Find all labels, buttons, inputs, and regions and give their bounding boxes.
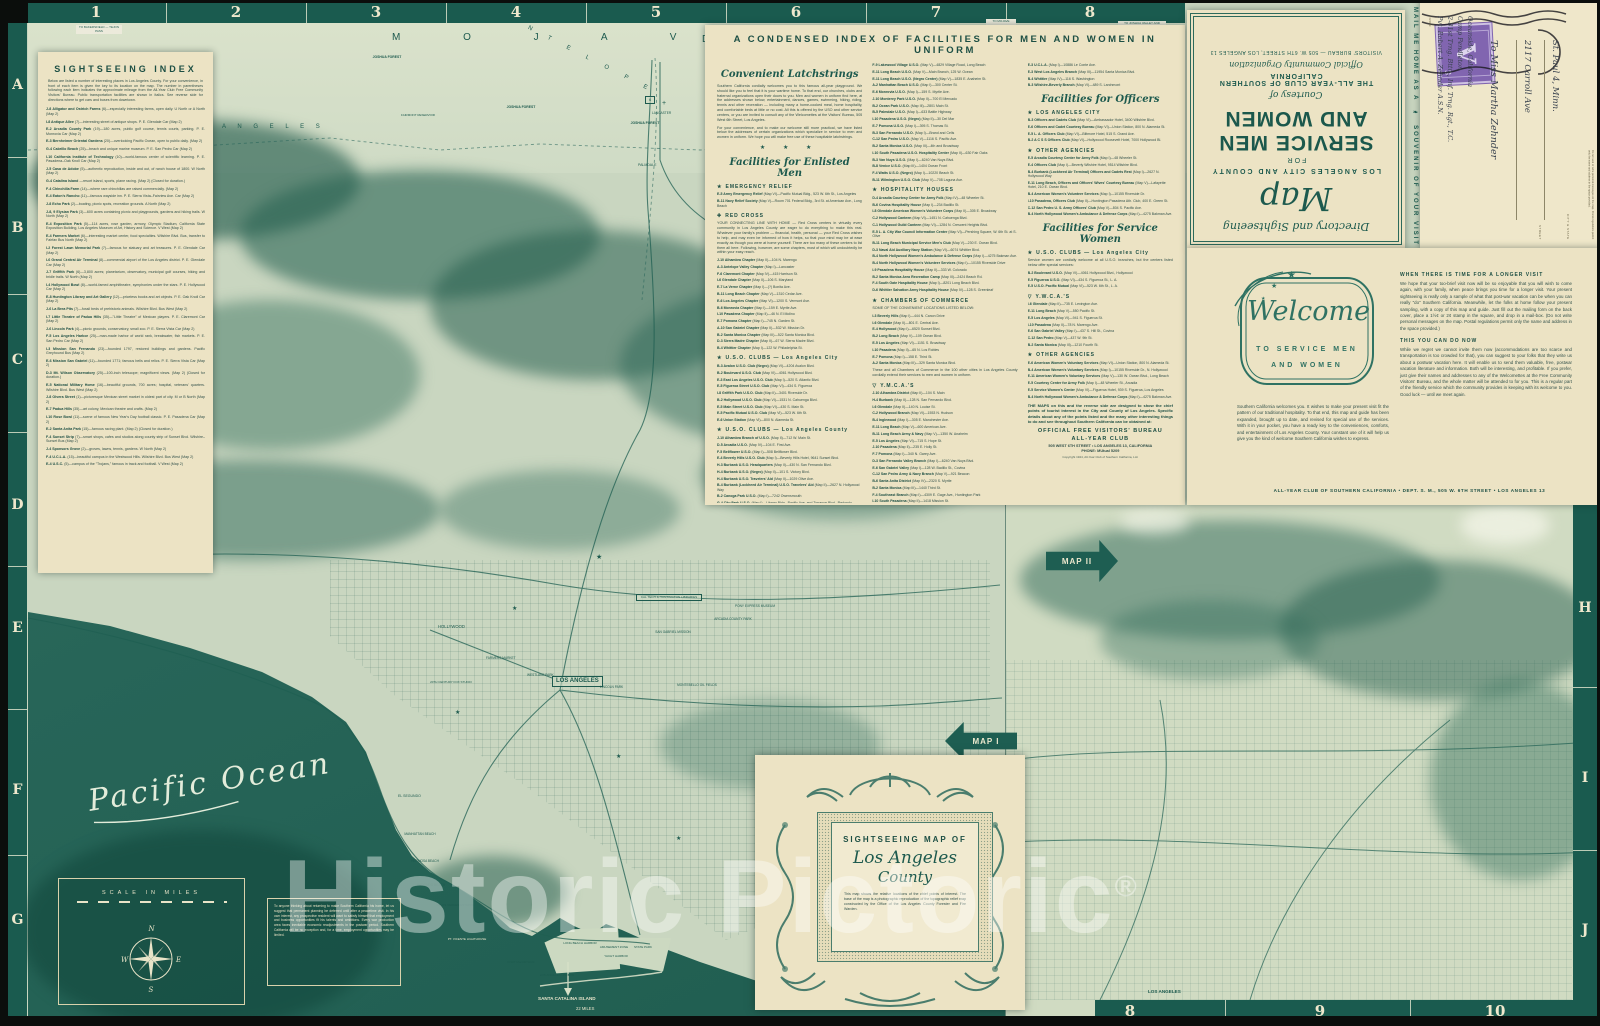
index-entry: F-4 Southeast Branch (Map I)—4309 E. Gag…: [872, 493, 1017, 497]
index-entry: E-11 American Women's Voluntary Services…: [1028, 374, 1173, 378]
map-label: LINCOLN PARK: [600, 686, 623, 690]
map-label: HERMOSA BEACH: [406, 860, 444, 864]
map-label: +: [662, 100, 666, 108]
map-label: AMUSEMENT ZONE: [596, 946, 632, 949]
index-entry: I-6 Glendale (Map II)—735 E. Lexington A…: [1028, 302, 1173, 306]
index-entry: B-4 Inglewood (Map I)—305 E. Manchester …: [872, 418, 1017, 422]
index-entry: G-4 City Park U.S.O. (Map I)—Library Bld…: [717, 501, 862, 503]
index-entry: B-2 Boulevard U.S.O. (Map VI)—4061 Holly…: [1028, 271, 1173, 275]
index-entry: E-11 Long Beach, Officers and Officers' …: [1028, 181, 1173, 190]
mountain-shading: [440, 470, 680, 550]
index-entry: B-2 Santa Monica (Map III)—1210 Fourth S…: [1028, 343, 1173, 347]
index-entry: D-6 Whittier Salvation Army Hospitality …: [872, 288, 1017, 292]
grid-number: 5: [651, 3, 661, 21]
map-label: SAN GABRIEL MISSION: [652, 631, 694, 635]
index-entry: E-5 Los Angeles (Map VI)—941 S. Figueroa…: [1028, 316, 1173, 320]
welcome-paragraph: Southern California welcomes you. It wis…: [1237, 404, 1389, 442]
index-entry: E-2 Santa Anita Park (15)—famous racing …: [46, 427, 205, 431]
index-entry: B-2 Santa Monica Area Recreation Camp (M…: [872, 275, 1017, 279]
welcome-panel: ★ ★ ★ Welcome TO SERVICE MEN AND WOMEN S…: [1187, 248, 1600, 505]
map-label: EL SEGUNDO: [398, 795, 421, 799]
street-label: STREET: [1538, 225, 1542, 240]
index-entry: B-4 North Hollywood Women's Ambulance & …: [1028, 212, 1173, 216]
index-entry: C-12 San Pedro U.S.O. (Map V)—1116 S. Pa…: [872, 137, 1017, 141]
map-label: YACHT HARBOR: [600, 955, 632, 958]
index-entry: B-4 North Hollywood Women's Ambulance & …: [872, 254, 1017, 258]
index-entry: I-10 South Pasadena (Map II)—1418 Missio…: [872, 499, 1017, 503]
index-entry: F-5 Los Angeles Harbor (25)—man-made har…: [46, 334, 205, 343]
cover-panel-text: Directory and SightseeingMapLOS ANGELES …: [1193, 16, 1399, 242]
index-entry: E-5 Figueroa U.S.O. (Map VI)—434 S. Figu…: [1028, 278, 1173, 282]
grid-letter: H: [1578, 600, 1591, 616]
condensed-index-column: E-3 U.C.L.A. (Map I)—10886 Le Conte Ave.…: [1028, 63, 1173, 503]
grid-letter: D: [11, 497, 23, 513]
do-now-heading: THIS YOU CAN DO NOW: [1400, 338, 1572, 344]
index-entry: J-4 Sponsors Grove (2)—groves, lawns, te…: [46, 447, 205, 451]
index-entry: E-4 U.S.C. (5)—campus of the "Trojans," …: [46, 462, 205, 466]
index-entry: B-11 Navy Relief Society (Map V)—Room 70…: [717, 199, 862, 208]
longer-visit-heading: WHEN THERE IS TIME FOR A LONGER VISIT: [1400, 272, 1572, 278]
svg-text:S: S: [149, 986, 154, 994]
index-entry: E-11 Long Beach (Map V)—600 American Ave…: [872, 425, 1017, 429]
stars-divider-icon: ★ ★ ★: [717, 144, 862, 151]
index-entry: B-2 Santa Monica U.S.O. (Map III)—4th an…: [872, 144, 1017, 148]
cover-panel: Directory and SightseeingMapLOS ANGELES …: [1187, 10, 1405, 248]
index-entry: E-4 Beverly Hills U.S.O. Club (Map I)—Be…: [717, 456, 862, 460]
do-now-paragraph: While we regret we cannot invite them no…: [1400, 347, 1572, 398]
index-entry: E-5 Arcadia Courtesy Center for Army Fol…: [1028, 156, 1173, 160]
index-entry: I-9 Pasadena Hospitality House (Map II)—…: [872, 268, 1017, 272]
index-entry: B-8 Venice U.S.O. (Map III)—1404 Ocean F…: [872, 164, 1017, 168]
welcome-sub1: TO SERVICE MEN: [1247, 346, 1367, 353]
city-state-line: St. Paul 4, Minn.: [1550, 40, 1560, 210]
section-heading: ★HOSPITALITY HOUSES: [872, 187, 1017, 193]
index-entry: E-7 Pomona U.S.O. (Map I)—395 S. Thomas …: [872, 124, 1017, 128]
mailer-fine-print: Do not seal or write personal messages o…: [1578, 150, 1594, 242]
section-heading: ★OTHER AGENCIES: [1028, 148, 1173, 154]
index-entry: A-2 Manhattan Beach U.S.O. (Map I)—300 C…: [872, 83, 1017, 87]
index-entry: B-3 San Fernando U.S.O. (Map I)—Brand an…: [872, 131, 1017, 135]
star-icon: ★: [1028, 148, 1033, 154]
index-entry: I-10 Pasadena (Map II)—78 N. Marengo Ave…: [1028, 323, 1173, 327]
index-entry: I-10 Pasadena Chapter (Map II)—46 N. El …: [717, 312, 862, 316]
map-label: 20TH CENTURY FOX STUDIO: [428, 681, 474, 684]
cartouche-note: This map shows the relative locations of…: [844, 892, 966, 912]
index-entry: H-4 Burbank U.S.O. Travelers' Aid (Map I…: [717, 477, 862, 481]
address-block: To Miss Martha Zehnder STREET 2117 Carro…: [1488, 40, 1572, 240]
index-entry: B-4 North Hollywood Women's Ambulance & …: [1028, 395, 1173, 399]
map-label: LANCASTER: [652, 112, 671, 116]
index-entry: I-3 Beverly Hills (Map I)—444 N. Canon D…: [872, 314, 1017, 318]
grid-letter: C: [12, 352, 23, 368]
grid-number: 3: [371, 3, 381, 21]
map-label: LOS ANGELES: [552, 676, 603, 687]
index-entry: C-2 Hollywood Branch (Map VI)—1553 N. Hu…: [872, 411, 1017, 415]
grid-letter: I: [1582, 770, 1589, 786]
bureau-address-line: 505 WEST 6TH STREET • LOS ANGELES 13, CA…: [1028, 444, 1173, 448]
index-entry: J-8 Olvera Street (1)—picturesque Mexica…: [46, 395, 205, 404]
longer-visit-paragraph: We hope that your too-brief visit now wi…: [1400, 281, 1572, 332]
from-label: FROM: [1428, 16, 1432, 241]
condensed-index-columns: Convenient LatchstringsSouthern Californ…: [705, 63, 1185, 503]
map-label: LOS ANGELES: [1148, 989, 1181, 994]
index-entry: F-6 Claremont Chapter (Map IV)—415 Harri…: [717, 272, 862, 276]
cover-line: VISITORS' BUREAU — 505 W. 6TH STREET, LO…: [1200, 49, 1392, 55]
cartouche-kicker: SIGHTSEEING MAP OF: [832, 835, 978, 844]
index-entry: I-10 Pasadena (Map II)—65 N. Los Robles: [872, 348, 1017, 352]
grid-letter: G: [12, 912, 24, 928]
index-entry: D-3 Naval Aid Auxiliary Navy Station (Ma…: [872, 248, 1017, 252]
cover-line: LOS ANGELES CITY AND COUNTY: [1200, 167, 1392, 174]
map-label: ★: [455, 710, 460, 717]
sender-line: Camp Pendleton: [1456, 16, 1464, 236]
index-entry: I-10 Pasadena, Officers Club (Map II)—Hu…: [1028, 199, 1173, 203]
sender-line: Oceanside, California: [1466, 16, 1474, 236]
svg-text:★: ★: [1271, 282, 1277, 290]
map-label: 6: [645, 96, 655, 104]
section-heading: ★U.S.O. CLUBS — Los Angeles City: [717, 355, 862, 361]
index-entry: I-10 Pasadena U.S.O. (Negro) (Map II)—30…: [872, 117, 1017, 121]
mail-home-strip: MAIL ME HOME AS A ❧ SOUVENIR OF YOUR VIS…: [1403, 4, 1419, 250]
index-entry: E-5 U.S.O. Pacific Mutual (Map VI)—523 W…: [1028, 284, 1173, 288]
grid-band-right: HIJ: [1573, 505, 1597, 1016]
index-entry: E-6 San Gabriel Valley (Map I)—437 S. Hi…: [1028, 329, 1173, 333]
index-entry: C-1 Hollywood Guild Canteen (Map VI)—128…: [872, 223, 1017, 227]
index-entry: C-12 San Pedro (Map V)—437 W. 9th St.: [1028, 336, 1173, 340]
index-entry: B-2 Canoga Park U.S.O. (Map I)—7242 Owen…: [717, 494, 862, 498]
index-entry: J-6 Lincoln Park (4)—picnic grounds, con…: [46, 327, 205, 331]
index-entry: D-3 Sierra Madre Chapter (Map II)—67 W. …: [717, 339, 862, 343]
welcome-title: Welcome: [1247, 296, 1367, 327]
index-entry: E-5 Pacific Mutual U.S.O. Club (Map VI)—…: [717, 411, 862, 415]
index-entry: B-2 A C S S Officers Club (Map VI)—Holly…: [1028, 138, 1173, 142]
map-label: PT. VICENTE LIGHTHOUSE: [444, 938, 490, 941]
section-heading: ▽Y.W.C.A.'S: [1028, 294, 1173, 300]
map-label: JOSHUA FOREST: [630, 122, 660, 126]
employment-notice: To anyone thinking about returning to ma…: [267, 898, 401, 986]
index-entry: I-10 California Institute of Technology …: [46, 155, 205, 164]
scale-box: SCALE IN MILES N: [58, 878, 245, 1005]
index-entry: E-5 National Military Home (16)—beautifu…: [46, 383, 205, 392]
sightseeing-index-title: SIGHTSEEING INDEX: [42, 64, 209, 74]
sightseeing-index-panel: SIGHTSEEING INDEX Below are listed a num…: [38, 52, 213, 573]
index-entry: B-2 Santa Monica (Map III)—1440 Third St…: [872, 486, 1017, 490]
index-entry: B-11 Long Beach Army & Navy (Map V)—1350…: [872, 432, 1017, 436]
index-entry: B-6 Santa Anita District (Map IV)—2320 S…: [872, 479, 1017, 483]
section-paragraph: Service women are cordially welcome at a…: [1028, 258, 1173, 268]
index-entry: B-6 Covina Hospitality House (Map I)—234…: [872, 203, 1017, 207]
index-entry: B-4 North Hollywood Women's Volunteer Se…: [872, 261, 1017, 265]
index-entry: F-4 Sunset Strip (7)—smart shops, cafes …: [46, 435, 205, 444]
triangle-icon: ▽: [1028, 294, 1033, 300]
map-label: FAIRMONT RESERVOIR: [400, 114, 436, 117]
map-label: PALOS VERDES ESTATES: [434, 904, 476, 907]
index-entry: E-3 East Los Angeles U.S.O. Club (Map I)…: [717, 378, 862, 382]
index-entry: B-2 Hollywood U.S.O. Club (Map VI)—1531 …: [717, 398, 862, 402]
welcome-frame: ★ ★ ★: [1231, 266, 1383, 396]
sightseeing-index-entries: J-8 Alligator and Ostrich Farms (6)—espe…: [38, 107, 213, 467]
map-label: CAL TECH & HUNTINGTON LIBRARIES: [636, 594, 702, 601]
map-label: WESTLAKE PARK: [527, 674, 554, 678]
section-paragraph: SOME OF THE CONVENIENT LOCATIONS LISTED …: [872, 306, 1017, 311]
index-entry: C-2 Hollywood Canteen (Map VI)—1451 N. C…: [872, 216, 1017, 220]
index-entry: E-7 Padua Hills (35)—art colony, Mexican…: [46, 407, 205, 411]
grid-number: 6: [791, 3, 801, 21]
index-entry: B-3 Wilshire-Beverly Branch (Map VI)—489…: [1028, 83, 1173, 87]
index-entry: D-5 Arcadia U.S.O. (Map IV)—104 E. First…: [717, 443, 862, 447]
grid-number: 2: [231, 3, 241, 21]
section-heading: ★LOS ANGELES CITY: [1028, 110, 1173, 116]
index-entry: F-5 Bellflower U.S.O. (Map I)—508 Bellfl…: [717, 450, 862, 454]
grid-letter: F: [13, 782, 23, 798]
index-entry: B-5 Palmdale U.S.O. (Map I)—633 Battle H…: [872, 110, 1017, 114]
map-label: ★: [676, 836, 681, 843]
index-entry: J-10 Pasadena (Map II)—235 E. Holly St.: [872, 445, 1017, 449]
welcome-sub2: AND WOMEN: [1247, 362, 1367, 369]
inset-cloud: [1460, 505, 1550, 545]
bureau-address-line: PHONE: MUtual 5209: [1028, 449, 1173, 453]
star-icon: ★: [1028, 250, 1033, 256]
star-icon: ★: [1028, 352, 1033, 358]
index-entry: B-4 Whittier (Map IV)—116 S. Washington: [1028, 77, 1173, 81]
index-entry: E-4 Officers Club (Map I)—Beverly Wilshi…: [1028, 163, 1173, 167]
grid-number: 8: [1085, 3, 1095, 21]
map-label: REDONDO BEACH: [412, 884, 450, 888]
section-heading: ★U.S.O. CLUBS — Los Angeles City: [1028, 250, 1173, 256]
index-entry: E-8 Huntington Library and Art Gallery (…: [46, 295, 205, 304]
map-route-chip: TO BAKERSFIELD — TEJON PASS: [76, 25, 122, 34]
section-script-heading: Convenient Latchstrings: [717, 69, 862, 80]
section-heading: ★CHAMBERS OF COMMERCE: [872, 298, 1017, 304]
cover-line: Map: [1200, 180, 1392, 218]
scan-edge-bottom: [0, 1016, 1600, 1026]
index-entry: B-3 Van Nuys U.S.O. (Map I)—6240 Van Nuy…: [872, 158, 1017, 162]
compass-n: N: [148, 925, 156, 933]
cartouche-text-panel: SIGHTSEEING MAP OF Los Angeles County Th…: [831, 822, 979, 952]
cover-line: SERVICE MEN: [1200, 130, 1392, 154]
cover-line: Official Community Organization: [1200, 60, 1392, 69]
index-entry: I-10 South Pasadena U.S.O. Hospitality C…: [872, 151, 1017, 155]
section-paragraph: YOUR CONNECTING LINE WITH HOME — Red Cro…: [717, 221, 862, 255]
map-label: 22 MILES: [576, 1007, 594, 1012]
grid-band-left: ABCDEFG: [8, 23, 27, 1016]
star-icon: ★: [872, 298, 877, 304]
condensed-index-panel: A CONDENSED INDEX OF FACILITIES FOR MEN …: [705, 25, 1185, 505]
scanned-map-sheet: 12345678 ABCDEFG HIJ 8910 M O J A V EDA …: [0, 0, 1600, 1026]
triangle-icon: ▽: [872, 383, 877, 389]
section-paragraph: These and all Chambers of Commerce in th…: [872, 368, 1017, 378]
star-icon: ★: [717, 427, 722, 433]
cartouche-title-1: Los Angeles: [832, 848, 978, 868]
section-script-heading: Facilities for Officers: [1028, 94, 1173, 105]
grid-number: 7: [931, 3, 941, 21]
index-entry: E-6 Mission San Gabriel (11)—founded 177…: [46, 359, 205, 368]
sender-line: 2-81st Trng. Bttn., Inf. Trng. Rgt., T.C…: [1446, 16, 1454, 236]
index-entry: E-2 Arcadia County Park (19)—180 acres, …: [46, 127, 205, 136]
index-entry: H-4 Burbank (Map II)—128 N. San Fernando…: [872, 398, 1017, 402]
map-label: JOSHUA FOREST: [372, 56, 402, 60]
cover-line: Courtesy of: [1200, 89, 1392, 99]
map-label: ★: [512, 606, 517, 613]
map-label: ★: [596, 554, 602, 562]
index-entry: F-7 Pomona (Map I)—340 N. Garey Ave.: [872, 452, 1017, 456]
map-label: LOS ANGELES HARBOR: [536, 974, 578, 977]
star-ornament-icon: ★: [1287, 270, 1296, 281]
section-script-heading: Facilities for Service Women: [1028, 223, 1173, 245]
condensed-index-column: Convenient LatchstringsSouthern Californ…: [717, 63, 862, 503]
index-entry: D-3 San Fernando Valley Branch (Map I)—6…: [872, 459, 1017, 463]
scan-edge-left: [0, 0, 8, 1026]
index-entry: B-3 Officers and Cadets Club (Map VI)—Am…: [1028, 118, 1173, 122]
index-entry: A-2 Santa Monica (Map III)—329 Santa Mon…: [872, 361, 1017, 365]
index-entry: B-2 Santa Monica Chapter (Map III)—522 S…: [717, 333, 862, 337]
index-entry: E-7 La Verne Chapter (Map I)—(?) Bonita …: [717, 285, 862, 289]
index-entry: I-6 Glendale Chapter (Map II)—106 S. Mar…: [717, 278, 862, 282]
section-script-heading: Facilities for Enlisted Men: [717, 157, 862, 179]
cover-line: Directory and Sightseeing: [1200, 220, 1392, 233]
cross-icon: ✚: [717, 213, 722, 219]
index-entry: D-4 Arcadia Courtesy Center for Army Fol…: [872, 196, 1017, 200]
condensed-index-column: F-9 Lakewood Village U.S.O. (Map V)—4829…: [872, 63, 1017, 503]
to-line: To Miss Martha Zehnder: [1488, 40, 1499, 235]
index-entry: I-3 Mission San Fernando (23)—founded 17…: [46, 347, 205, 356]
scan-edge-top: [0, 0, 1600, 3]
cartouche-title-2: County: [832, 868, 978, 886]
index-entry: E-6 Union Station (Map VI)—800 N. Alamed…: [717, 418, 862, 422]
section-heading: ✚RED CROSS: [717, 213, 862, 219]
index-entry: B-11 Long Beach Chapter (Map V)—1310 Ced…: [717, 292, 862, 296]
sender-block: FROM Pvt. Robert A. Zehnder A.S.N.2-81st…: [1428, 16, 1484, 241]
map-label: ★: [616, 754, 621, 761]
section-heading: ▽Y.M.C.A.'S: [872, 383, 1017, 389]
cover-line: FOR: [1200, 156, 1392, 163]
grid-letter: B: [12, 220, 24, 236]
index-entry: E-5 Army Emergency Relief (Map VI)—Pacif…: [717, 192, 862, 196]
index-entry: F-9 Lakewood Village U.S.O. (Map V)—4829…: [872, 63, 1017, 67]
index-entry: B-2 Ocean Park U.S.O. (Map III)—2801 Mai…: [872, 104, 1017, 108]
index-entry: I-2 Forest Lawn Memorial Park (7)—famous…: [46, 246, 205, 255]
map-label: JOSHUA FOREST: [506, 106, 536, 110]
index-entry: E-6 American Women's Voluntary Services …: [1028, 361, 1173, 365]
index-entry: B-4 American Women's Voluntary Services …: [1028, 368, 1173, 372]
index-entry: F-4 Chinchilla Farm (14)—where rare chin…: [46, 187, 205, 191]
section-heading: ★OTHER AGENCIES: [1028, 352, 1173, 358]
index-entry: E-5 Los Angeles (Map VI)—715 S. Hope St.: [872, 439, 1017, 443]
index-entry: E-6 Monrovia U.S.O. (Map I)—159 S. Myrtl…: [872, 90, 1017, 94]
index-entry: E-6 Los Angeles Chapter (Map VI)—1200 S.…: [717, 299, 862, 303]
grid-letter: E: [12, 620, 23, 636]
section-heading: ★EMERGENCY RELIEF: [717, 184, 862, 190]
index-entry: I-8 Griffith Park U.S.O. Club (Map II)—3…: [717, 391, 862, 395]
index-entry: J-10 Monterey Park U.S.O. (Map II)—700 E…: [872, 97, 1017, 101]
index-entry: E-11 Long Beach (Map V)—550 Pacific St.: [1028, 309, 1173, 313]
section-paragraph: For your convenience, and to make our we…: [717, 126, 862, 140]
section-paragraph-bold: THE MAPS on this and the reverse side ar…: [1028, 403, 1173, 425]
map-label: PALMDALE: [638, 164, 656, 168]
index-entry: I-6 Glendale (Map II)—140 N. Louise St.: [872, 405, 1017, 409]
index-entry: D-3 Mt. Wilson Observatory (25)—100-inch…: [46, 371, 205, 380]
index-entry: I-7 Little Theatre of Padua Hills (35)—"…: [46, 315, 205, 324]
index-entry: H-4 Burbank U.S.O. (Negro) (Map II)—101 …: [717, 470, 862, 474]
index-entry: E-4 Hollywood (Map I)—6520 Sunset Blvd.: [872, 327, 1017, 331]
index-entry: E-6 San Gabriel Valley (Map I)—128 W. Ba…: [872, 466, 1017, 470]
section-paragraph: Southern California cordially welcomes y…: [717, 84, 862, 123]
inset-cloud: [1120, 508, 1190, 534]
index-entry: G-4 Catalina Island —resort island, spor…: [46, 179, 205, 183]
index-entry: E-11 Long Beach U.S.O. (Map V)—Main Bran…: [872, 70, 1017, 74]
bureau-line: OFFICIAL FREE VISITORS' BUREAU: [1028, 428, 1173, 434]
index-entry: E-5 Los Angeles (Map VI)—1151 S. Broadwa…: [872, 341, 1017, 345]
index-entry: C-12 San Pedro Army & Navy Branch (Map V…: [872, 472, 1017, 476]
grid-number: 1: [91, 3, 101, 21]
index-entry: E-5 L. A. City War Council Information C…: [872, 230, 1017, 239]
index-entry: E-4 Exposition Park (5)—114 acres, rose …: [46, 222, 205, 231]
index-entry: J-7 Griffith Park (6)—3,800 acres; plane…: [46, 270, 205, 279]
index-entry: B-11 Long Beach Municipal Service Men's …: [872, 241, 1017, 245]
index-entry: H-3 Burbank U.S.O. Headquarters (Map II)…: [717, 463, 862, 467]
street-line: 2117 Carroll Ave: [1522, 40, 1532, 210]
scale-bar: [77, 901, 227, 903]
index-entry: B-6 Monrovia Chapter (Map I)—159 E. Myrt…: [717, 306, 862, 310]
index-entry: I-8 Glendale American Women's Volunteer …: [872, 209, 1017, 213]
index-entry: J-10 Alhambra Branch of U.S.O. (Map II)—…: [717, 436, 862, 440]
copyright-line: Copyright 1944, All-Year Club of Souther…: [1028, 455, 1173, 459]
index-entry: I-6 Grand Central Air Terminal (8)—comme…: [46, 258, 205, 267]
index-entry: F-4 South Gate Hospitality House (Map I)…: [872, 281, 1017, 285]
index-entry: B-2 Long Beach (Map V)—109 Ocean Blvd.: [872, 334, 1017, 338]
map-label: STATE PARK: [630, 946, 656, 949]
index-entry: A-3 Antelope Valley Chapter (Map I)—Lanc…: [717, 265, 862, 269]
star-icon: ★: [717, 355, 722, 361]
index-entry: J-8 Echo Park (2)—boating, picnic spots,…: [46, 202, 205, 206]
index-entry: B-2 Boulevard U.S.O. Club (Map VI)—4061 …: [717, 371, 862, 375]
bureau-line: ALL-YEAR CLUB: [1028, 436, 1173, 442]
club-footer-line: ALL-YEAR CLUB OF SOUTHERN CALIFORNIA • D…: [1233, 488, 1586, 493]
compass-rose: N E S W: [121, 917, 181, 997]
index-entry: J-10 Alhambra District (Map II)—104 S. M…: [872, 391, 1017, 395]
map-label: FORT MacARTHUR: [502, 961, 540, 964]
svg-text:W: W: [121, 956, 129, 964]
index-entry: E-3 West Los Angeles Branch (Map III)—11…: [1028, 70, 1173, 74]
index-entry: E-5 Main Street U.S.O. Club (Map VI)—430…: [717, 405, 862, 409]
index-entry: B-4 American Women's Volunteer Services …: [1028, 192, 1173, 196]
index-entry: E-6 Officers and Cadet Courtesy Bureau (…: [1028, 125, 1173, 129]
index-entry: E-5 Courtesy Center for Army Folk (Map I…: [1028, 381, 1173, 385]
index-entry: E-5 Figueroa Street U.S.O. Club (Map VI)…: [717, 384, 862, 388]
index-entry: I-4 Hollywood Bowl (8)—world-famed amphi…: [46, 283, 205, 292]
index-entry: E-11 Long Beach U.S.O. (Negro Center) (M…: [872, 77, 1017, 81]
cartouche-panel: SIGHTSEEING MAP OF Los Angeles County Th…: [755, 755, 1025, 1010]
condensed-index-title: A CONDENSED INDEX OF FACILITIES FOR MEN …: [705, 34, 1185, 56]
index-entry: E-4 Eaton's Rancho (11)—famous wayside i…: [46, 194, 205, 198]
index-entry: B-11 Wilmington U.S.O. Club (Map V)—708 …: [872, 178, 1017, 182]
index-entry: E-3 U.C.L.A. (Map I)—10886 Le Conte Ave.: [1028, 63, 1173, 67]
index-entry: E-5 L. A. Officers Club (Map VI)—Biltmor…: [1028, 132, 1173, 136]
index-entry: E-4 Farmers Market (6)—interesting marke…: [46, 234, 205, 243]
cover-line: THE ALL-YEAR CLUB OF SOUTHERN CALIFORNIA: [1210, 72, 1382, 86]
city-state-label: CITY & STATE: [1566, 214, 1570, 240]
map-label: HOLLYWOOD: [438, 625, 465, 630]
map-label: SANTA CATALINA ISLAND: [538, 996, 596, 1001]
index-entry: B-4 Whittier Chapter (Map I)—122 W. Phil…: [717, 346, 862, 350]
index-entry: F-4 U.C.L.A. (15)—beautiful campus in th…: [46, 455, 205, 459]
index-entry: I-10 Rose Bowl (11)—scene of famous New …: [46, 415, 205, 424]
index-entry: B-4 Burbank (Lockheed Air Terminal) U.S.…: [717, 483, 862, 492]
cover-line: AND WOMEN: [1200, 106, 1392, 130]
section-heading: ★U.S.O. CLUBS — Los Angeles County: [717, 427, 862, 433]
index-entry: A-10 San Gabriel Chapter (Map II)—532 W.…: [717, 326, 862, 330]
grid-letter: A: [12, 77, 23, 93]
